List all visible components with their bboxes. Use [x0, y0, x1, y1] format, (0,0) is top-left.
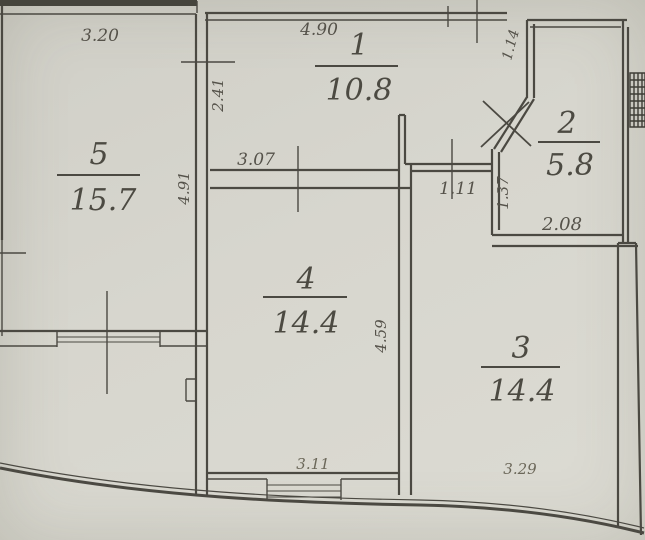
room-5-number: 5 [89, 137, 108, 172]
room-4-number: 4 [295, 262, 315, 297]
room-2-number: 2 [556, 106, 576, 141]
dim-3-07: 3.07 [237, 150, 275, 170]
exterior-wall-top-left [0, 0, 197, 6]
room-2-area: 5.8 [546, 148, 594, 183]
room-4-area: 14.4 [273, 306, 340, 341]
room-1-number: 1 [349, 28, 368, 63]
dim-2-41: 2.41 [209, 78, 227, 112]
dim-2-08: 2.08 [541, 214, 582, 235]
dim-4-91: 4.91 [175, 171, 193, 205]
facade-curve-outer [0, 468, 644, 533]
room-1-area: 10.8 [326, 73, 393, 108]
dim-1-11: 1.11 [439, 179, 477, 199]
dim-4-59: 4.59 [372, 319, 390, 354]
vent-shaft-grid [630, 73, 645, 127]
dim-4-90: 4.90 [299, 20, 338, 40]
floor-plan: 1 10.8 2 5.8 3 14.4 4 14.4 5 15.7 3.20 4… [0, 0, 645, 540]
dim-3-20: 3.20 [81, 26, 119, 46]
dim-1-14: 1.14 [499, 28, 523, 62]
room-3-area: 14.4 [489, 374, 556, 409]
dim-3-11: 3.11 [296, 455, 329, 473]
room-5-area: 15.7 [70, 183, 138, 218]
door-cross-symbol [481, 101, 531, 147]
room-3-number: 3 [511, 331, 530, 366]
dim-3-29: 3.29 [503, 460, 537, 478]
dim-1-37: 1.37 [494, 176, 512, 210]
